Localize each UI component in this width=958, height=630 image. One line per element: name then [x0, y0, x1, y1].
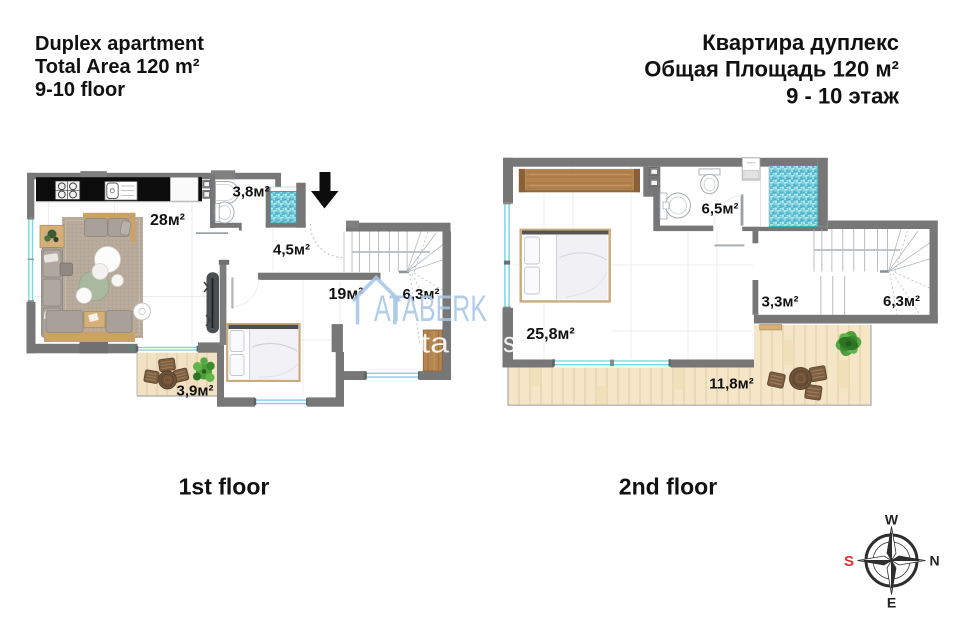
svg-text:25,8м²: 25,8м² [526, 326, 574, 343]
svg-text:11,8м²: 11,8м² [709, 376, 753, 393]
svg-text:1st floor: 1st floor [179, 474, 270, 500]
svg-text:s: s [503, 327, 516, 359]
svg-text:28м²: 28м² [150, 212, 185, 229]
svg-text:Total Area 120 m²: Total Area 120 m² [35, 56, 200, 78]
svg-text:3,3м²: 3,3м² [762, 294, 799, 311]
svg-text:шахта: шахта [747, 161, 756, 165]
svg-text:ATABERK: ATABERK [374, 288, 487, 329]
svg-text:S: S [844, 553, 854, 570]
svg-text:3,8м²: 3,8м² [233, 184, 270, 201]
svg-text:Квартира дуплекс: Квартира дуплекс [702, 30, 899, 55]
svg-text:2nd floor: 2nd floor [619, 474, 717, 500]
svg-text:9 - 10 этаж: 9 - 10 этаж [786, 84, 899, 109]
svg-text:3,9м²: 3,9м² [177, 383, 214, 400]
svg-text:Общая Площадь 120 м²: Общая Площадь 120 м² [644, 57, 899, 82]
svg-text:W: W [885, 512, 899, 528]
svg-text:6,3м²: 6,3м² [883, 293, 920, 310]
svg-text:E: E [887, 595, 896, 611]
svg-text:6,5м²: 6,5м² [702, 201, 739, 218]
svg-text:ata: ata [402, 328, 450, 360]
svg-text:4,5м²: 4,5м² [273, 242, 310, 259]
svg-text:9-10 floor: 9-10 floor [35, 79, 125, 101]
svg-text:Duplex apartment: Duplex apartment [35, 33, 204, 55]
svg-text:N: N [929, 553, 939, 569]
